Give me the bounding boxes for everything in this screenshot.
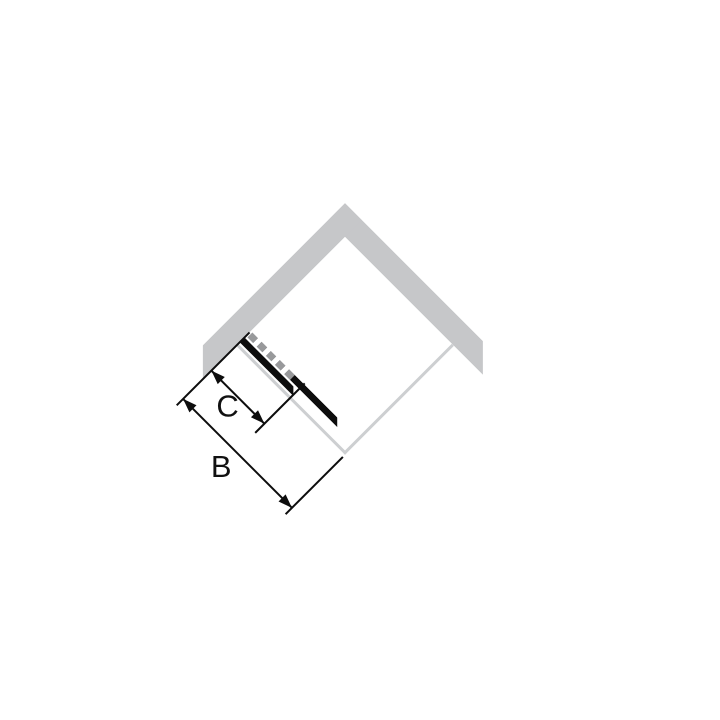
dimension-b-label: B xyxy=(204,450,238,484)
door-panel-inner xyxy=(240,337,299,396)
door-panel-outer xyxy=(290,375,342,427)
arrowhead-b-start-icon xyxy=(180,395,197,412)
wall-right xyxy=(328,203,500,375)
arrowhead-b-end-icon xyxy=(279,494,296,511)
glass-panel-front-line xyxy=(236,344,347,455)
diagram-canvas: C B xyxy=(0,0,720,720)
dimension-c-label: C xyxy=(211,390,245,424)
glass-panel-side-line xyxy=(343,344,454,455)
arrowhead-c-end-icon xyxy=(251,410,268,427)
wall-left xyxy=(186,203,362,379)
